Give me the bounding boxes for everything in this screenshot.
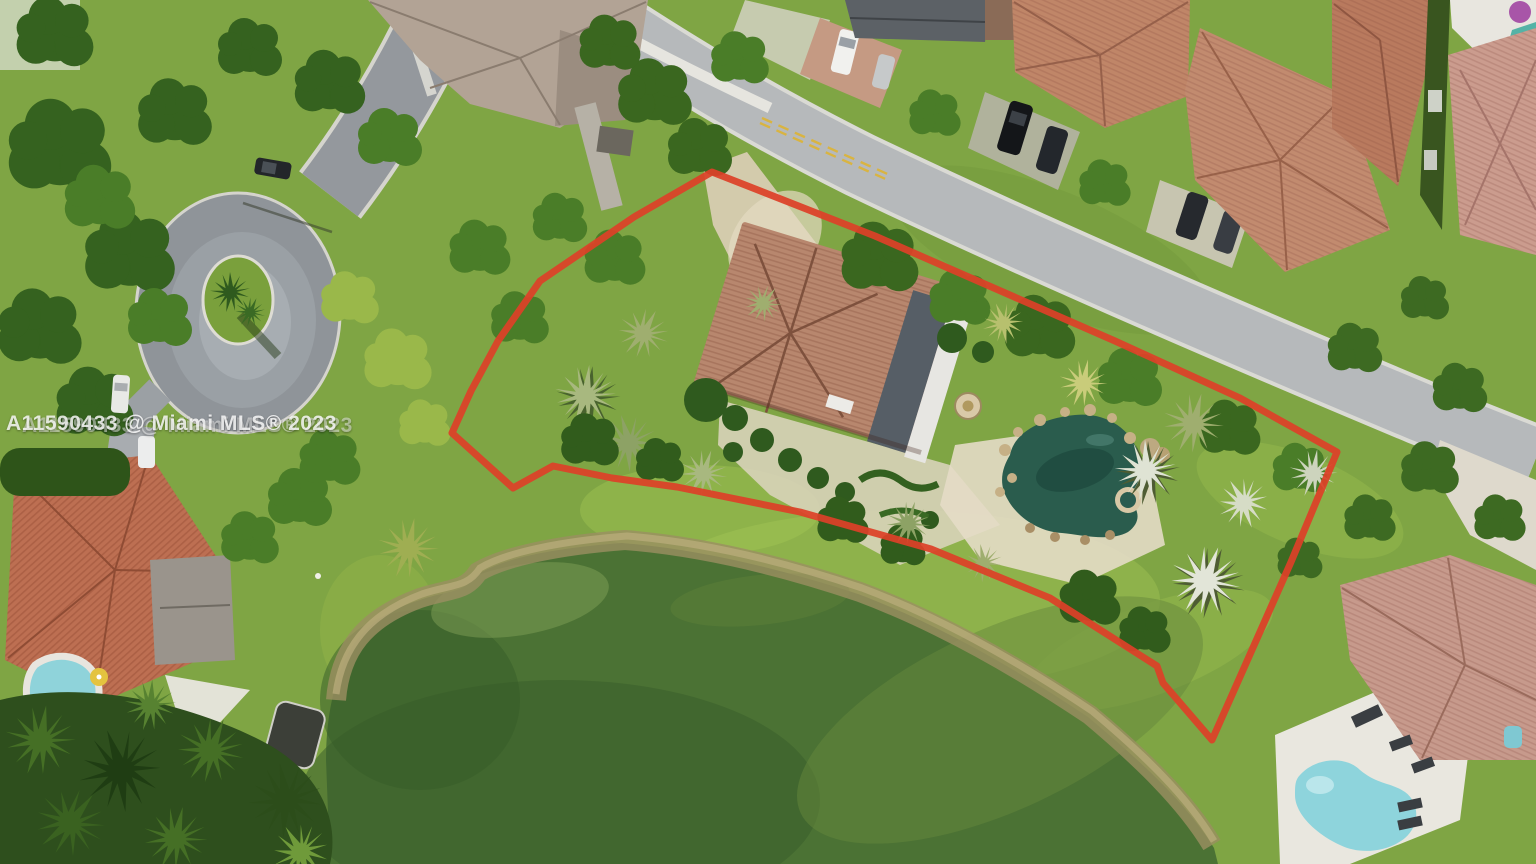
bird xyxy=(315,573,321,579)
spa xyxy=(1504,726,1522,748)
car xyxy=(138,436,155,468)
car xyxy=(111,374,131,413)
aerial-photo: A11590433 @ Miami MLS® 2023 A11590433 @ … xyxy=(0,0,1536,864)
